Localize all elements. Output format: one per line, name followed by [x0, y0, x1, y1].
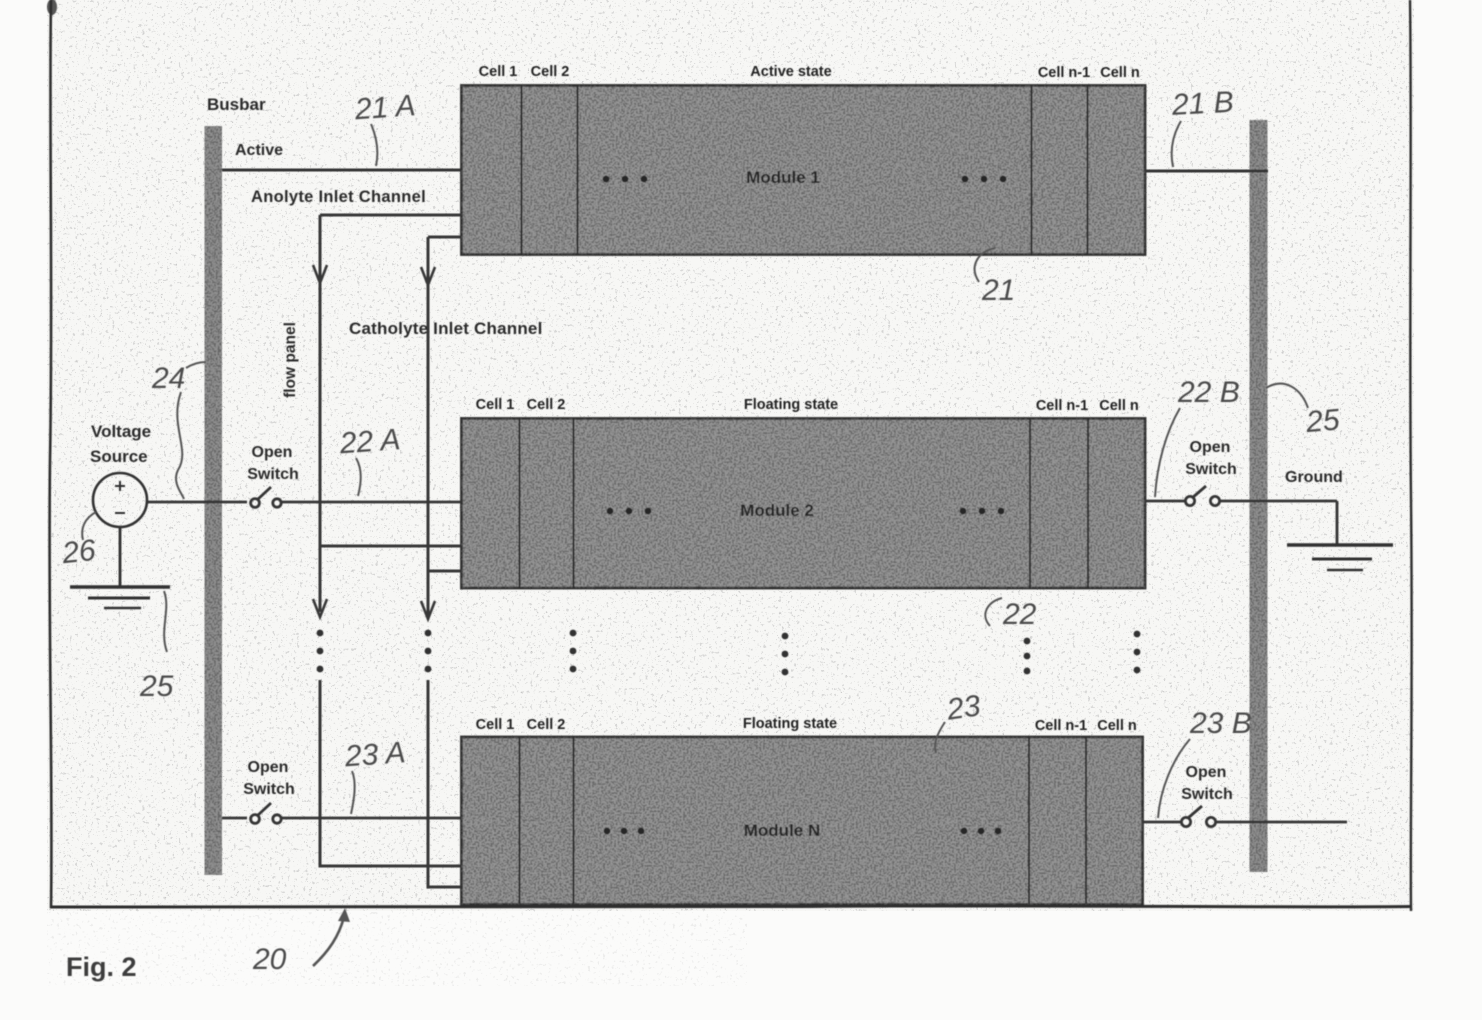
svg-text:Cell 1: Cell 1: [476, 717, 515, 733]
svg-text:Cell n: Cell n: [1097, 718, 1136, 734]
svg-text:Cell n: Cell n: [1099, 398, 1138, 414]
svg-text:Open: Open: [252, 444, 293, 461]
svg-text:Cell 2: Cell 2: [527, 717, 566, 733]
svg-text:Cell 1: Cell 1: [479, 64, 518, 80]
svg-text:Catholyte Inlet Channel: Catholyte Inlet Channel: [349, 319, 543, 338]
svg-text:Switch: Switch: [243, 781, 295, 798]
svg-text:Module N: Module N: [744, 821, 821, 840]
svg-text:Open: Open: [1186, 764, 1227, 781]
svg-text:Switch: Switch: [247, 466, 299, 483]
svg-text:Active: Active: [235, 142, 283, 159]
svg-text:Open: Open: [248, 759, 289, 776]
svg-text:21: 21: [981, 274, 1015, 307]
svg-text:Cell 1: Cell 1: [476, 397, 515, 413]
svg-text:22 B: 22 B: [1177, 376, 1240, 409]
svg-text:Module 1: Module 1: [746, 168, 820, 187]
svg-text:Cell n-1: Cell n-1: [1038, 65, 1090, 81]
svg-text:Open: Open: [1190, 439, 1231, 456]
svg-text:21 A: 21 A: [353, 89, 417, 126]
svg-text:Switch: Switch: [1185, 461, 1237, 478]
svg-text:20: 20: [252, 943, 287, 976]
svg-text:22: 22: [1002, 598, 1037, 631]
svg-text:Cell 2: Cell 2: [531, 64, 570, 80]
svg-text:Voltage: Voltage: [91, 422, 151, 441]
svg-text:23 A: 23 A: [343, 736, 407, 773]
svg-text:23 B: 23 B: [1189, 707, 1252, 740]
svg-text:22 A: 22 A: [338, 423, 402, 460]
svg-text:Cell n-1: Cell n-1: [1035, 718, 1087, 734]
svg-text:Ground: Ground: [1285, 469, 1343, 486]
svg-text:24: 24: [151, 362, 185, 395]
svg-text:flow panel: flow panel: [282, 322, 299, 398]
svg-text:Floating state: Floating state: [744, 397, 838, 413]
svg-text:26: 26: [60, 534, 98, 570]
svg-text:Busbar: Busbar: [207, 95, 266, 114]
svg-text:Anolyte Inlet Channel: Anolyte Inlet Channel: [251, 188, 426, 206]
svg-text:25: 25: [1304, 403, 1341, 439]
svg-text:Active state: Active state: [750, 64, 831, 80]
svg-text:Source: Source: [90, 447, 148, 466]
svg-text:Module 2: Module 2: [740, 501, 814, 520]
svg-text:Cell 2: Cell 2: [527, 397, 566, 413]
svg-text:21 B: 21 B: [1170, 86, 1234, 122]
svg-text:Switch: Switch: [1181, 786, 1233, 803]
svg-text:Fig. 2: Fig. 2: [66, 952, 137, 982]
svg-text:Cell n-1: Cell n-1: [1036, 398, 1088, 414]
svg-text:Floating state: Floating state: [743, 716, 837, 732]
svg-text:23: 23: [944, 689, 983, 727]
svg-text:25: 25: [139, 670, 174, 703]
svg-text:Cell n: Cell n: [1100, 65, 1139, 81]
